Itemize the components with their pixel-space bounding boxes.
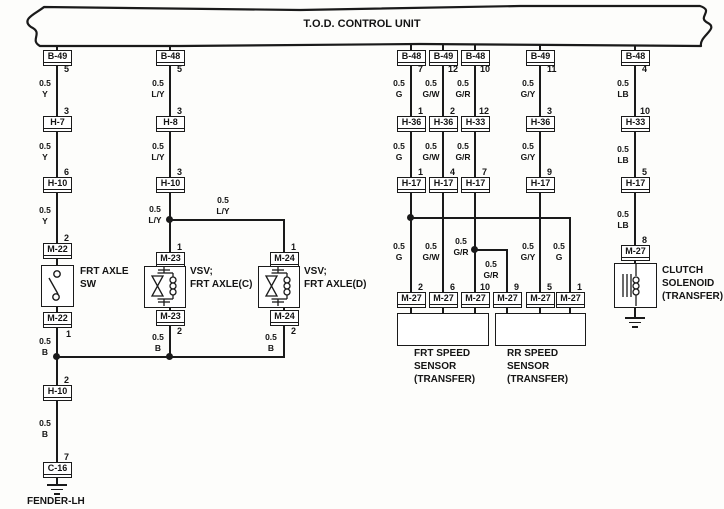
connector-m27: M-27 [461,292,490,308]
pin-number: 4 [450,168,455,177]
vsv-c-label-1: VSV; [190,266,213,279]
pin-number: 7 [64,453,69,462]
wire-gauge: 0.5 [145,332,171,343]
vsv-valve-coil-icon [144,266,186,308]
wire-color: G/W [418,152,444,163]
wire-label: 0.5 G/W [418,141,444,162]
pin-number: 9 [514,283,519,292]
wire-color: L/Y [145,89,171,100]
wire-color: Y [32,152,58,163]
pin-number: 11 [547,65,557,74]
clutch-solenoid-label-2: SOLENOID [662,278,714,291]
wire-color: G [386,152,412,163]
wire-label: 0.5 LB [610,209,636,230]
wire-gauge: 0.5 [32,336,58,347]
connector-h7: H-7 [43,116,72,132]
wire-label: 0.5 B [258,332,284,353]
junction-dot [407,214,414,221]
wire-color: G [386,252,412,263]
frt-axle-switch-icon [41,265,74,307]
rr-speed-sensor-box [495,313,586,346]
wire-color: G/R [450,152,476,163]
connector-m27: M-27 [621,245,650,261]
pin-number: 1 [418,107,423,116]
wire-color: B [32,429,58,440]
vsv-d-label-1: VSV; [304,266,327,279]
wire-gauge: 0.5 [610,144,636,155]
ground-location-label: FENDER-LH [27,496,85,509]
wire-label: 0.5 LB [610,144,636,165]
pin-number: 9 [547,168,552,177]
pin-number: 2 [450,107,455,116]
wire-color: G/W [418,89,444,100]
wire [410,217,571,219]
wire-color: L/Y [210,206,236,217]
pin-number: 1 [291,243,296,252]
clutch-solenoid-label-1: CLUTCH [662,265,703,278]
wire-label: 0.5 B [32,418,58,439]
pin-number: 12 [479,107,489,116]
frt-speed-sensor-label-2: SENSOR [414,361,456,374]
wire-gauge: 0.5 [145,141,171,152]
wire-color: G/R [450,89,476,100]
wire-label: 0.5 B [145,332,171,353]
wire-label: 0.5 G/R [450,141,476,162]
frt-speed-sensor-label-1: FRT SPEED [414,348,470,361]
pin-number: 1 [418,168,423,177]
pin-number: 12 [448,65,458,74]
junction-dot [166,353,173,360]
wire-label: 0.5 G [386,241,412,262]
connector-m23: M-23 [156,310,185,326]
pin-number: 2 [291,327,296,336]
wire-gauge: 0.5 [515,241,541,252]
wire-gauge: 0.5 [32,205,58,216]
vsv-valve-coil-icon [258,266,300,308]
connector-h36: H-36 [429,116,458,132]
connector-h17: H-17 [461,177,490,193]
rr-speed-sensor-label-3: (TRANSFER) [507,374,568,387]
pin-number: 10 [480,65,490,74]
pin-number: 10 [480,283,490,292]
wire-label: 0.5 L/Y [142,204,168,225]
wire-gauge: 0.5 [258,332,284,343]
vsv-d-label-2: FRT AXLE(D) [304,279,366,292]
wire-label: 0.5 G/W [418,241,444,262]
wire-label: 0.5 Y [32,141,58,162]
wire-gauge: 0.5 [32,418,58,429]
wire-label: 0.5 G/Y [515,241,541,262]
wire-color: B [145,343,171,354]
wire-label: 0.5 G [546,241,572,262]
wiring-diagram: T.O.D. CONTROL UNIT B-49 5 0.5 Y H-7 3 0… [0,0,724,509]
connector-m22: M-22 [43,312,72,328]
wire-color: G [386,89,412,100]
wire-gauge: 0.5 [546,241,572,252]
wire-gauge: 0.5 [32,78,58,89]
connector-h17: H-17 [621,177,650,193]
rr-speed-sensor-label-1: RR SPEED [507,348,558,361]
wire-color: G/Y [515,152,541,163]
wire-label: 0.5 L/Y [210,195,236,216]
wire-label: 0.5 G [386,78,412,99]
connector-h36: H-36 [526,116,555,132]
connector-m27: M-27 [397,292,426,308]
frt-axle-sw-label-1: FRT AXLE [80,266,129,279]
pin-number: 6 [450,283,455,292]
pin-number: 4 [642,65,647,74]
connector-m24: M-24 [270,310,299,326]
connector-m27: M-27 [429,292,458,308]
wire-gauge: 0.5 [418,141,444,152]
wire [474,249,508,251]
wire-color: LB [610,220,636,231]
pin-number: 10 [640,107,650,116]
connector-h10: H-10 [156,177,185,193]
wire-label: 0.5 G/R [478,259,504,280]
wire-label: 0.5 G/Y [515,141,541,162]
ground-icon [47,484,67,496]
wire-label: 0.5 LB [610,78,636,99]
wire-gauge: 0.5 [418,241,444,252]
pin-number: 1 [177,243,182,252]
frt-axle-sw-label-2: SW [80,279,96,292]
wire-gauge: 0.5 [145,78,171,89]
wire-label: 0.5 L/Y [145,141,171,162]
wire-gauge: 0.5 [450,78,476,89]
ground-icon [625,317,645,329]
wire-label: 0.5 G/W [418,78,444,99]
wire-label: 0.5 G/Y [515,78,541,99]
pin-number: 3 [64,107,69,116]
pin-number: 5 [642,168,647,177]
wire-label: 0.5 G/R [448,236,474,257]
wire-gauge: 0.5 [448,236,474,247]
pin-number: 5 [64,65,69,74]
connector-h8: H-8 [156,116,185,132]
connector-h17: H-17 [397,177,426,193]
connector-h17: H-17 [526,177,555,193]
wire [169,219,285,221]
vsv-c-label-2: FRT AXLE(C) [190,279,252,292]
connector-m27: M-27 [556,292,585,308]
connector-h36: H-36 [397,116,426,132]
wire-gauge: 0.5 [610,209,636,220]
connector-h10: H-10 [43,385,72,401]
pin-number: 1 [577,283,582,292]
connector-m22: M-22 [43,243,72,259]
control-unit-title: T.O.D. CONTROL UNIT [250,18,474,31]
connector-m27: M-27 [526,292,555,308]
pin-number: 2 [177,327,182,336]
wire-color: Y [32,89,58,100]
frt-speed-sensor-box [397,313,489,346]
connector-h33: H-33 [461,116,490,132]
wire-gauge: 0.5 [478,259,504,270]
wire-gauge: 0.5 [210,195,236,206]
wire-label: 0.5 Y [32,205,58,226]
clutch-solenoid-label-3: (TRANSFER) [662,291,723,304]
pin-number: 7 [418,65,423,74]
wire-color: G/R [478,270,504,281]
pin-number: 3 [547,107,552,116]
pin-number: 5 [177,65,182,74]
connector-h10: H-10 [43,177,72,193]
pin-number: 2 [64,234,69,243]
connector-c16: C-16 [43,462,72,478]
wire-gauge: 0.5 [142,204,168,215]
wire-label: 0.5 G [386,141,412,162]
wire-color: LB [610,89,636,100]
pin-number: 5 [547,283,552,292]
wire-color: G [546,252,572,263]
wire-gauge: 0.5 [610,78,636,89]
wire-color: B [258,343,284,354]
pin-number: 6 [64,168,69,177]
wire-color: G/Y [515,89,541,100]
wire-color: B [32,347,58,358]
wire-gauge: 0.5 [386,241,412,252]
connector-h17: H-17 [429,177,458,193]
pin-number: 1 [66,330,71,339]
wire-color: G/R [448,247,474,258]
wire-gauge: 0.5 [515,78,541,89]
pin-number: 3 [177,107,182,116]
wire-gauge: 0.5 [515,141,541,152]
wire-gauge: 0.5 [32,141,58,152]
wire-label: 0.5 B [32,336,58,357]
wire-color: L/Y [142,215,168,226]
wire-gauge: 0.5 [450,141,476,152]
rr-speed-sensor-label-2: SENSOR [507,361,549,374]
wire-label: 0.5 Y [32,78,58,99]
connector-m27: M-27 [493,292,522,308]
wire-color: Y [32,216,58,227]
pin-number: 8 [642,236,647,245]
frt-speed-sensor-label-3: (TRANSFER) [414,374,475,387]
connector-h33: H-33 [621,116,650,132]
wire-label: 0.5 L/Y [145,78,171,99]
wire-label: 0.5 G/R [450,78,476,99]
wire-color: G/Y [515,252,541,263]
wire-color: G/W [418,252,444,263]
wire-gauge: 0.5 [418,78,444,89]
pin-number: 3 [177,168,182,177]
wire-color: LB [610,155,636,166]
wire-gauge: 0.5 [386,78,412,89]
pin-number: 2 [64,376,69,385]
pin-number: 7 [482,168,487,177]
clutch-solenoid-icon [614,263,657,308]
wire-color: L/Y [145,152,171,163]
pin-number: 2 [418,283,423,292]
wire-gauge: 0.5 [386,141,412,152]
